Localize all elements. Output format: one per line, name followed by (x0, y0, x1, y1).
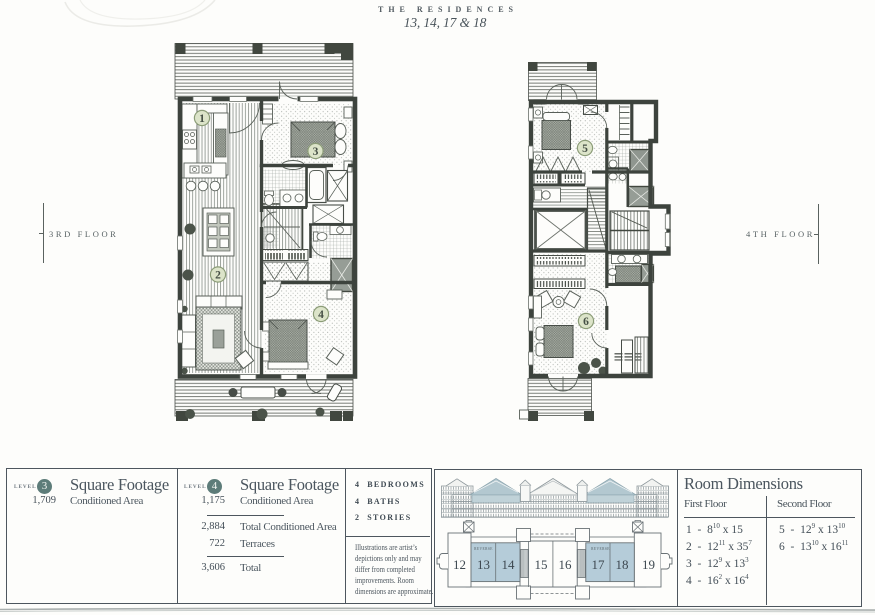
svg-text:17: 17 (592, 557, 606, 572)
svg-text:REVERSE: REVERSE (474, 547, 493, 551)
svg-text:4: 4 (318, 309, 324, 321)
svg-text:3: 3 (313, 146, 319, 158)
svg-text:13: 13 (477, 557, 490, 572)
svg-text:12: 12 (453, 557, 466, 572)
svg-text:18: 18 (616, 557, 629, 572)
svg-text:16: 16 (559, 557, 573, 572)
svg-text:5: 5 (582, 143, 588, 155)
svg-text:6: 6 (583, 316, 589, 328)
svg-text:REVERSE: REVERSE (591, 547, 610, 551)
svg-text:19: 19 (642, 557, 655, 572)
svg-text:14: 14 (502, 557, 516, 572)
svg-text:2: 2 (215, 270, 221, 282)
svg-text:15: 15 (535, 557, 548, 572)
svg-text:1: 1 (199, 113, 205, 125)
